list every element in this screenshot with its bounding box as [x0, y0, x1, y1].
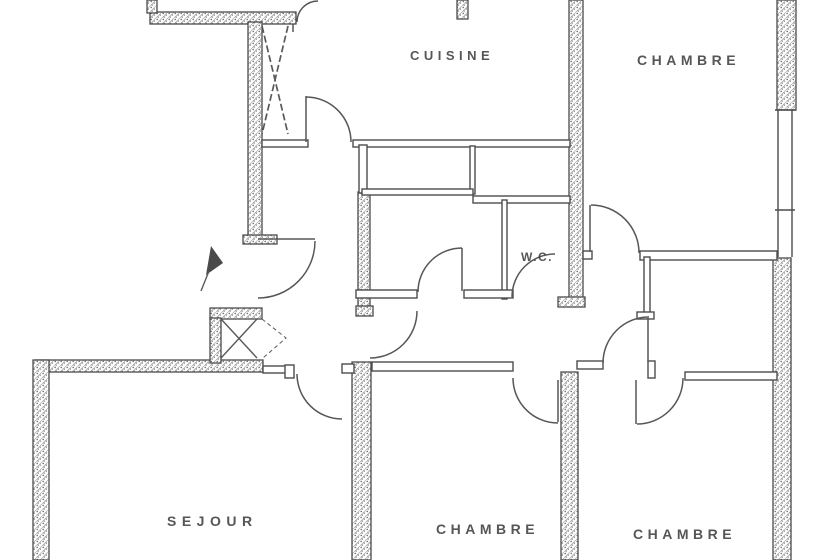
- wall: [773, 258, 791, 560]
- room-label-sejour: SEJOUR: [167, 513, 258, 529]
- room-label-chambre-bottom-right: CHAMBRE: [633, 526, 736, 542]
- door-swing-arc: [591, 205, 639, 253]
- entrance-arrow-icon: [201, 246, 223, 291]
- interior-partitions: [262, 140, 777, 380]
- wall: [33, 360, 49, 560]
- partition: [685, 372, 777, 380]
- door-swing-arc: [258, 241, 315, 298]
- floor-plan-page: CUISINE CHAMBRE W.C. SEJOUR CHAMBRE CHAM…: [0, 0, 840, 560]
- closet-cross-icon: [221, 319, 257, 358]
- partition: [342, 364, 354, 373]
- door-swing-arc: [297, 1, 318, 22]
- door-swing-arc: [637, 378, 683, 424]
- partition: [502, 200, 507, 299]
- wall: [150, 12, 296, 24]
- door-swing-arc: [418, 248, 462, 292]
- partition: [359, 145, 367, 193]
- wall: [248, 22, 262, 238]
- wall: [569, 0, 583, 298]
- doors: [258, 1, 683, 424]
- partition: [464, 290, 513, 298]
- partition: [362, 189, 473, 195]
- wall: [352, 362, 371, 560]
- partition: [262, 140, 308, 147]
- wall: [356, 306, 373, 316]
- door-swing-arc: [513, 378, 558, 423]
- partition: [644, 257, 650, 317]
- door-swing-arc: [297, 374, 342, 419]
- room-label-chambre-top-right: CHAMBRE: [637, 52, 740, 68]
- door-swing-arc: [306, 97, 351, 142]
- partition: [285, 365, 294, 378]
- wall: [36, 360, 263, 372]
- wall: [457, 0, 468, 19]
- partition: [640, 251, 777, 260]
- partition: [356, 290, 417, 298]
- room-label-chambre-bottom-middle: CHAMBRE: [436, 521, 539, 537]
- partition: [353, 140, 570, 147]
- wall: [561, 372, 578, 560]
- floor-plan-drawing: [0, 0, 840, 560]
- exterior-walls: [33, 0, 796, 560]
- wall: [147, 0, 157, 13]
- partition: [372, 362, 513, 371]
- room-label-wc: W.C.: [521, 250, 553, 264]
- room-label-cuisine: CUISINE: [410, 48, 494, 63]
- partition: [263, 366, 288, 373]
- partition: [583, 251, 592, 259]
- door-swing-arc: [370, 311, 417, 358]
- glazed-panel-cross-icon: [262, 26, 288, 134]
- closet-wall: [210, 318, 221, 363]
- wall: [777, 0, 796, 110]
- closet-folding-door: [262, 319, 286, 358]
- wall: [558, 297, 585, 307]
- door-swing-arc: [603, 317, 649, 363]
- partition: [648, 361, 655, 378]
- partition: [470, 146, 475, 194]
- partition: [473, 196, 570, 203]
- partition: [577, 361, 603, 369]
